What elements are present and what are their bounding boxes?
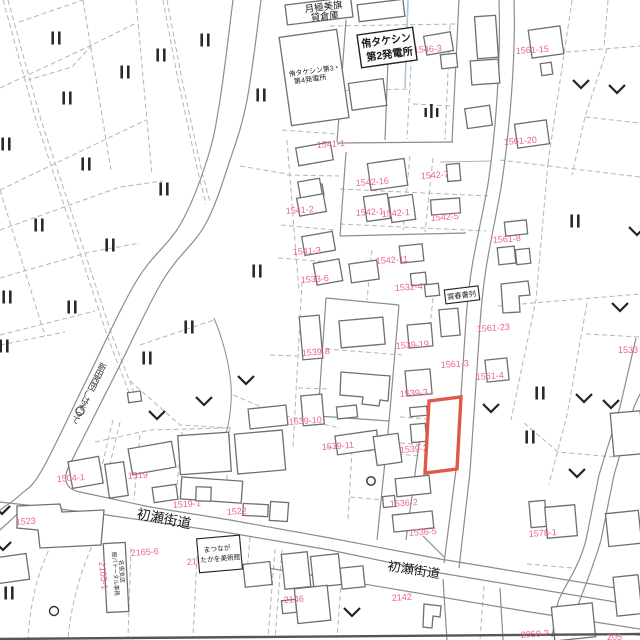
svg-text:2165-6: 2165-6 <box>130 546 159 558</box>
svg-text:1519-1: 1519-1 <box>172 498 201 510</box>
svg-text:1504-1: 1504-1 <box>56 472 85 484</box>
svg-text:1561-4: 1561-4 <box>475 370 504 382</box>
svg-text:1533-6: 1533-6 <box>300 273 329 285</box>
svg-text:2142: 2142 <box>391 592 412 603</box>
svg-text:1539-8: 1539-8 <box>301 346 330 358</box>
svg-text:1542-1: 1542-1 <box>381 207 410 219</box>
svg-text:205: 205 <box>607 632 622 640</box>
svg-text:1536-2: 1536-2 <box>389 497 418 509</box>
svg-text:1522: 1522 <box>226 506 247 517</box>
svg-text:2146: 2146 <box>283 594 304 605</box>
svg-text:1561-3: 1561-3 <box>440 358 469 370</box>
svg-text:1542-1: 1542-1 <box>355 206 384 218</box>
svg-text:1539-2: 1539-2 <box>399 443 428 455</box>
svg-text:1533: 1533 <box>618 345 638 355</box>
svg-text:1532-4: 1532-4 <box>394 281 423 293</box>
svg-text:2050-2: 2050-2 <box>520 628 549 640</box>
svg-text:1536-5: 1536-5 <box>408 526 437 538</box>
svg-text:1519: 1519 <box>127 470 148 481</box>
svg-text:1541-1: 1541-1 <box>316 138 345 150</box>
svg-text:1561-8: 1561-8 <box>492 233 521 245</box>
svg-text:1542-5: 1542-5 <box>430 211 459 223</box>
svg-text:1546-3: 1546-3 <box>413 43 442 55</box>
svg-text:1541-2: 1541-2 <box>285 204 314 216</box>
svg-text:1541-3: 1541-3 <box>292 245 321 257</box>
svg-text:1523: 1523 <box>15 516 36 527</box>
svg-text:1539-3: 1539-3 <box>399 387 428 399</box>
svg-text:1542-7: 1542-7 <box>420 169 449 181</box>
svg-text:1578-1: 1578-1 <box>528 527 557 539</box>
